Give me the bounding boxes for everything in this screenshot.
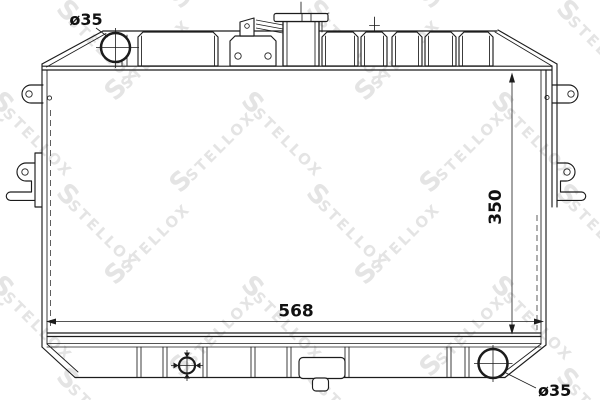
watermark-brand-text: STELLOX [0,292,9,369]
bracket-l-shape [6,163,35,200]
bracket-plate [230,36,276,66]
bracket-hole [22,169,28,175]
cap-seat-flange [274,14,328,22]
bottom-chamfers-inner [47,344,541,373]
watermark-tile: SSTELLOX [164,101,262,199]
left-side-plate [35,153,42,207]
bracket-hole [568,91,574,97]
watermark-brand-text: STELLOX [182,0,259,1]
neck-mask [283,22,319,67]
watermark-brand-text: STELLOX [182,292,259,369]
watermark-brand-text: STELLOX [432,108,509,185]
watermark-brand-text: STELLOX [0,108,9,185]
top-boss [322,32,358,66]
drain-boss [299,358,345,379]
watermark-brand-text: STELLOX [0,0,9,1]
watermark-brand-text: STELLOX [117,200,194,277]
bracket-left-middle [6,163,35,200]
watermark-brand-text: STELLOX [64,380,141,400]
bottom-chamfers [42,345,546,378]
drawing-canvas: SSTELLOXSSTELLOXSSTELLOXSSTELLOXSSTELLOX… [0,0,600,400]
watermark-brand-text: STELLOX [249,104,326,181]
watermark-brand-text: STELLOX [182,108,259,185]
top-boss [392,32,422,66]
vent-tube [370,17,380,31]
watermark-brand-text: STELLOX [0,288,76,365]
watermark-brand-text: STELLOX [564,12,600,89]
top-boss [425,32,456,66]
watermark-tile: SSTELLOX [164,0,262,15]
watermark-brand-text: STELLOX [564,196,600,273]
watermark-logo-letter: S [414,0,448,15]
bracket-tab [240,18,254,36]
dim-label-overall-width: 568 [278,302,314,322]
watermark-tile: SSTELLOX [0,0,11,15]
top-boss [459,32,493,66]
watermark-brand-text: STELLOX [432,0,509,1]
watermark-tile: SSTELLOX [414,0,512,15]
dim-label-core-height: 350 [486,189,506,225]
watermark-tile: SSTELLOX [0,270,83,368]
dim-arrow-top [509,73,515,83]
watermark-tile: SSTELLOX [0,86,83,184]
dim-label-inlet-diameter: ø35 [69,10,102,29]
leader-line-outlet [504,372,536,388]
bracket-hole [26,91,32,97]
radiator-technical-drawing: SSTELLOXSSTELLOXSSTELLOXSSTELLOXSSTELLOX… [0,0,600,400]
watermark-logo-letter: S [164,0,198,15]
watermark-brand-text: STELLOX [0,104,76,181]
watermark-brand-text: STELLOX [249,288,326,365]
top-boss [138,32,218,66]
pin-hole [47,96,51,100]
bracket-top-right [545,85,578,103]
top-right-slant [498,30,557,64]
watermark-brand-text: STELLOX [367,200,444,277]
dim-label-outlet-diameter: ø35 [538,381,571,400]
top-center-bracket [230,18,283,66]
watermark-tile: SSTELLOX [235,86,333,184]
drain-plug [313,378,329,391]
watermark-tile: SSTELLOX [414,101,512,199]
top-right-slant-inner [495,32,552,66]
